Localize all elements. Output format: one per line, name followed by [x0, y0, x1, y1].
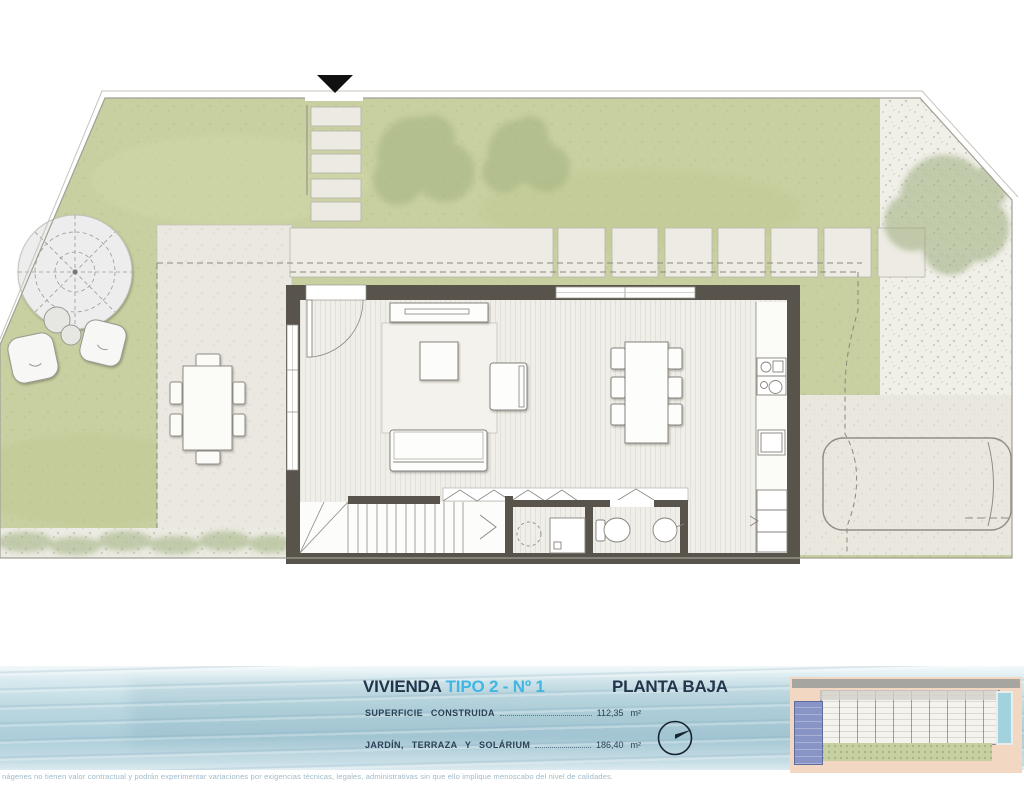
parasol — [18, 215, 132, 329]
area-value: 112,35 — [597, 708, 624, 718]
entrance-arrow-icon — [317, 75, 353, 93]
site-key-plan — [790, 677, 1022, 773]
house — [286, 285, 800, 564]
legal-disclaimer: nágenes no tienen valor contractual y po… — [2, 772, 613, 781]
unit-title: VIVIENDA TIPO 2 - Nº 1 — [363, 677, 545, 697]
sofa — [390, 430, 487, 471]
staircase — [300, 496, 505, 553]
unit-type: TIPO 2 - Nº 1 — [446, 677, 545, 696]
dotted-leader — [500, 715, 592, 716]
area-label: SUPERFICIE CONSTRUIDA — [365, 708, 495, 718]
toilet — [596, 518, 630, 542]
north-indicator-icon — [655, 718, 697, 760]
kitchen-cabinets — [757, 490, 787, 552]
window — [556, 287, 695, 298]
oven — [758, 430, 785, 455]
area-unit: m² — [631, 708, 642, 718]
tv-unit — [390, 303, 488, 322]
keyplan-garden-strip — [820, 743, 992, 761]
area-unit: m² — [631, 740, 642, 750]
area-value: 186,40 — [596, 740, 624, 750]
wardrobe — [443, 488, 688, 501]
area-row-superficie: SUPERFICIE CONSTRUIDA 112,35 m² — [365, 708, 641, 718]
window — [287, 325, 298, 470]
kitchen-counter — [750, 302, 787, 553]
parking-area — [795, 395, 1012, 555]
keyplan-highlighted-unit — [794, 701, 823, 765]
floor-plan-drawing — [0, 60, 1024, 672]
area-row-jardin: JARDÍN, TERRAZA Y SOLÁRIUM 186,40 m² — [365, 740, 641, 750]
unit-label: VIVIENDA — [363, 677, 441, 696]
keyplan-road — [792, 679, 1020, 688]
dotted-leader — [535, 747, 591, 748]
keyplan-roofs — [820, 690, 998, 700]
coffee-table — [420, 342, 458, 380]
entrance-steps — [307, 105, 361, 221]
shower — [550, 518, 585, 553]
floor-title: PLANTA BAJA — [612, 677, 728, 697]
brochure-page: VIVIENDA TIPO 2 - Nº 1 PLANTA BAJA SUPER… — [0, 0, 1024, 800]
area-label: JARDÍN, TERRAZA Y SOLÁRIUM — [365, 740, 530, 750]
armchair — [490, 363, 527, 410]
keyplan-pool — [996, 691, 1013, 745]
shrub-border — [0, 528, 292, 558]
